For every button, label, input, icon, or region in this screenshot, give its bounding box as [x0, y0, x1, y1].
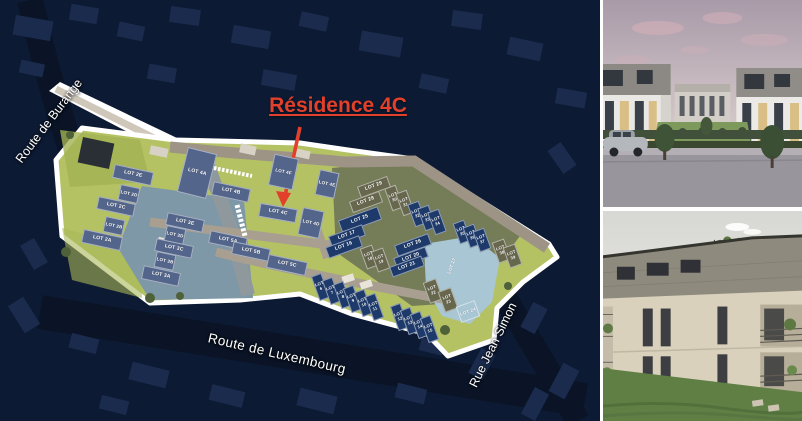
right-balcony-upper — [760, 305, 802, 347]
photo-top-exterior-render — [603, 0, 802, 207]
site-plan-panel: LOT 2ELOT 2DLOT 2CLOT 2BLOT 2ALOT 3ELOT … — [0, 0, 600, 421]
render-dusk-houses — [603, 0, 802, 207]
photos-panel — [600, 0, 802, 421]
distant-building — [675, 84, 731, 122]
brochure-page: LOT 2ELOT 2DLOT 2CLOT 2BLOT 2ALOT 3ELOT … — [0, 0, 802, 421]
site-plan-graphic — [0, 0, 600, 421]
photo-bottom-exterior-render — [603, 211, 802, 421]
right-balcony-lower — [760, 352, 802, 392]
render-apartment-building — [603, 211, 802, 421]
